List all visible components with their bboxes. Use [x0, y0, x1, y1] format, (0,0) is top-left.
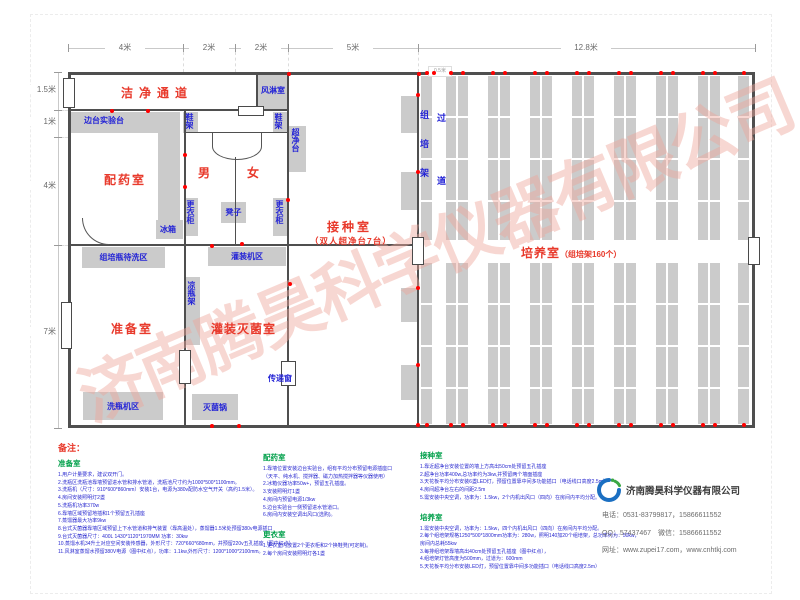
label-air-shower: 风淋室	[259, 86, 287, 95]
socket-dot-47	[713, 423, 717, 427]
room-clean-corridor: 洁净通道	[121, 84, 193, 101]
wall-airshower-left	[256, 72, 258, 110]
label-side-bench: 边台实验台	[84, 116, 124, 125]
label-shoe-rack-right: 鞋架	[274, 113, 283, 149]
note-line: 1.靠近超净台安装位置的墙上方高出50cm处预留五孔插座	[420, 464, 585, 472]
notes-title-changing: 更衣室	[263, 529, 418, 540]
socket-dot-15	[210, 424, 214, 428]
dim-tick-left-4	[54, 428, 62, 429]
label-wardrobe-left: 更衣柜	[186, 200, 195, 240]
note-line: 7.蒸馏器最大功率9kw	[58, 518, 258, 526]
note-line: 1.更衣室内放置2个更衣柜和2个换鞋凳(可定制)。	[263, 543, 418, 551]
dim-tick-top-3	[288, 44, 289, 52]
label-bottle-wait-area: 组培瓶待洗区	[82, 247, 165, 268]
notes-column-3: 接种室 1.靠近超净台安装位置的墙上方高出50cm处预留五孔插座2.超净台功率4…	[420, 450, 585, 572]
socket-dot-23	[461, 423, 465, 427]
dim-tick-top-0	[68, 44, 69, 52]
label-clean-bench: 超净台	[291, 128, 300, 174]
socket-dot-29	[533, 423, 537, 427]
note-line: 4.房间安装照明灯2盏	[58, 495, 258, 503]
note-line: 10.蒸馏水机34升土对应空间安装传感器，外形尺寸：720*660*680mm，…	[58, 541, 258, 549]
socket-dot-21	[449, 423, 453, 427]
label-fridge: 冰箱	[160, 225, 176, 234]
room-prep: 准备室	[111, 320, 153, 337]
socket-dot-20	[449, 71, 453, 75]
socket-dot-14	[288, 282, 292, 286]
dim-left-4m: 4米	[30, 181, 56, 190]
dim-ext-top-3	[418, 52, 420, 72]
note-line: 6.房间内安装空调出风口(选购)。	[263, 512, 418, 520]
dim-top-2m-b: 2米	[241, 43, 281, 52]
note-line: 4.房间超净台左右的间距2.5m	[420, 487, 585, 495]
dim-ext-top-1	[235, 52, 237, 72]
room-inoculation: 接种室	[327, 218, 372, 235]
label-wardrobe-right: 更衣柜	[275, 200, 284, 240]
socket-dot-17	[432, 71, 436, 75]
room-female: 女	[247, 164, 259, 181]
room-culture-sub: （组培架160个）	[560, 250, 621, 259]
socket-dot-42	[671, 71, 675, 75]
note-line: 3.洗瓶机（尺寸：910*600*860mm）安装1台，电源为380v配防水空气…	[58, 487, 258, 495]
door-prep-room	[61, 302, 72, 349]
socket-dot-36	[617, 71, 621, 75]
note-line: 1.靠墙位置安装边台实验台，组有平均分布预留电源插座口	[263, 466, 418, 474]
dim-ext-top-0	[183, 52, 185, 72]
dim-tick-left-2	[54, 137, 62, 138]
socket-dot-25	[491, 423, 495, 427]
label-rack-vertical: 组培架	[419, 110, 428, 200]
label-cool-rack: 凉瓶架	[187, 281, 196, 343]
socket-dot-41	[659, 423, 663, 427]
left-dimension-line	[58, 72, 59, 428]
socket-dot-39	[629, 423, 633, 427]
socket-dot-24	[491, 71, 495, 75]
notes-title-prep: 准备室	[58, 458, 258, 469]
notes-list-inoculation: 1.靠近超净台安装位置的墙上方高出50cm处预留五孔插座2.超净台功率400w,…	[420, 464, 585, 503]
notes-list-culture: 1.需安装中央空调，功率为：1.5kw，四个内机出风口（四向）在房间内平均分配。…	[420, 526, 585, 572]
note-line: 8.台式灭菌器靠墙区域预留上下水管道和排气装置（靠高温处），蒸馏器1.5米处预留…	[58, 526, 258, 534]
note-line: 4.房间内预留电源1/3kw	[263, 497, 418, 505]
socket-dot-33	[575, 423, 579, 427]
socket-dot-3	[417, 72, 421, 76]
socket-dot-34	[587, 71, 591, 75]
room-culture: 培养室	[521, 246, 560, 260]
socket-dot-28	[533, 71, 537, 75]
dim-tick-left-1	[54, 110, 62, 111]
socket-dot-1	[146, 109, 150, 113]
label-aisle-vertical: 过道	[436, 113, 445, 198]
dim-left-7m: 7米	[30, 327, 56, 336]
socket-dot-12	[240, 242, 244, 246]
room-dispensing: 配药室	[104, 171, 146, 188]
socket-dot-4	[416, 93, 420, 97]
dim-left-1-5m: 1.5米	[30, 85, 56, 94]
notes-column-1: 备注： 准备室 1.用户计量要求，建议双开门。2.洗瓶区洗瓶池靠墙预留进水管和排…	[58, 441, 258, 557]
socket-dot-43	[671, 423, 675, 427]
note-line: 2.冰箱仪器功率50w+，预留五孔插座。	[263, 481, 418, 489]
dim-top-12-8m: 12.8米	[561, 43, 611, 52]
dim-tick-top-2	[235, 44, 236, 52]
company-block: 济南腾昊科学仪器有限公司 电话：0531-83799817，1586661155…	[596, 477, 740, 555]
socket-dot-46	[713, 71, 717, 75]
note-line: 2.每个房间安装照明灯各1盏	[263, 551, 418, 559]
label-washer-area: 洗瓶机区	[83, 392, 163, 420]
socket-dot-31	[545, 423, 549, 427]
dim-top-4m: 4米	[105, 43, 145, 52]
socket-dot-0	[110, 109, 114, 113]
socket-dot-9	[183, 153, 187, 157]
company-logo-icon	[596, 477, 622, 503]
note-line: 5.天花板平均分布安装LED灯，预留位置靠中间多功能插口（电话线口高度2.5m）	[420, 564, 585, 572]
socket-dot-6	[416, 286, 420, 290]
door-culture-right	[748, 237, 760, 265]
door-prep-filling	[179, 350, 191, 384]
dim-top-5m: 5米	[333, 43, 373, 52]
socket-dot-16	[237, 424, 241, 428]
dim-tick-top-5	[755, 44, 756, 52]
note-line: 2.每个组培架规格1250*500*1800mm功率为：280w，照明140加2…	[420, 533, 585, 541]
socket-dot-26	[503, 71, 507, 75]
socket-dot-30	[545, 71, 549, 75]
notes-title-inoculation: 接种室	[420, 450, 585, 461]
socket-dot-19	[425, 423, 429, 427]
note-line: 4.组培架灯管高度为500mm，过道为：600mm	[420, 556, 585, 564]
socket-dot-48	[742, 71, 746, 75]
floorplan-canvas: 济南腾昊科学仪器有限公司 4米 2米 2米 5米 12.8米 1.5米 1米 4…	[0, 0, 800, 600]
dim-tick-left-0	[54, 72, 62, 73]
socket-dot-8	[416, 423, 420, 427]
note-line: 3.安装照明灯1盏	[263, 489, 418, 497]
notes-list-changing: 1.更衣室内放置2个更衣柜和2个换鞋凳(可定制)。2.每个房间安装照明灯各1盏	[263, 543, 418, 558]
notes-title-dispensing: 配药室	[263, 452, 418, 463]
socket-dot-5	[416, 170, 420, 174]
socket-dot-32	[575, 71, 579, 75]
socket-dot-35	[587, 423, 591, 427]
socket-dot-22	[461, 71, 465, 75]
dim-left-1m: 1米	[30, 117, 56, 126]
socket-dot-18	[425, 71, 429, 75]
socket-dot-38	[629, 71, 633, 75]
label-filling-area: 灌装机区	[208, 247, 286, 266]
socket-dot-40	[659, 71, 663, 75]
dim-tick-left-3	[54, 245, 62, 246]
label-shoe-rack-left: 鞋架	[185, 113, 194, 149]
room-male: 男	[198, 164, 210, 181]
label-stool: 凳子	[221, 208, 246, 217]
note-line: 5.需安装中央空调，功率为：1.5kw，2个内机出风口（四向）在房间内平均分配。	[420, 495, 585, 503]
room-culture-label-group: 培养室（组培架160个）	[521, 244, 621, 262]
socket-dot-13	[210, 244, 214, 248]
company-website: 网址：www.zupei17.com，www.cnhtkj.com	[602, 545, 740, 555]
wall-male-female-divider	[235, 157, 236, 245]
socket-dot-11	[286, 198, 290, 202]
socket-dot-49	[742, 423, 746, 427]
door-inoculation-culture	[412, 237, 424, 265]
notes-column-2: 配药室 1.靠墙位置安装边台实验台，组有平均分布预留电源插座口（天平、纯水机、搅…	[263, 452, 418, 558]
note-line: 3.天花板平均分布安装6盏LED灯，预留位置靠中间多功能插口（电话线口高度2.5…	[420, 479, 585, 487]
note-line: 房间内总耗55kw	[420, 541, 585, 549]
socket-dot-27	[503, 423, 507, 427]
company-name: 济南腾昊科学仪器有限公司	[626, 483, 740, 497]
room-filling-sterilize: 灌装灭菌室	[211, 320, 276, 337]
note-line: 5.洗瓶机功率370w	[58, 503, 258, 511]
dim-tick-top-1	[183, 44, 184, 52]
note-line: 1.用户计量要求，建议双开门。	[58, 472, 258, 480]
socket-dot-2	[287, 72, 291, 76]
door-changing-entry	[238, 106, 264, 116]
room-inoculation-sub: （双人超净台7台）	[310, 235, 392, 247]
dim-top-2m-a: 2米	[189, 43, 229, 52]
company-qq-wechat: QQ：57437467 微信：15866611552	[602, 528, 740, 538]
notes-heading: 备注：	[58, 441, 258, 454]
notes-title-culture: 培养室	[420, 512, 585, 523]
socket-dot-37	[617, 423, 621, 427]
label-pass-window: 传递窗	[268, 374, 292, 383]
note-line: 11.风淋室蒸馏水预留380V电源（图中红点），功率：1.1kw,外形尺寸：12…	[58, 549, 258, 557]
door-corridor-entrance	[63, 78, 75, 108]
socket-dot-45	[701, 423, 705, 427]
dim-tick-top-4	[418, 44, 419, 52]
socket-dot-44	[701, 71, 705, 75]
socket-dot-10	[183, 185, 187, 189]
company-phone: 电话：0531-83799817，15866611552	[602, 510, 740, 520]
socket-dot-7	[416, 363, 420, 367]
notes-list-prep: 1.用户计量要求，建议双开门。2.洗瓶区洗瓶池靠墙预留进水管和排水管道，洗瓶池尺…	[58, 472, 258, 557]
notes-list-dispensing: 1.靠墙位置安装边台实验台，组有平均分布预留电源插座口（天平、纯水机、搅拌器、磁…	[263, 466, 418, 520]
label-autoclave: 灭菌锅	[192, 394, 238, 420]
dim-ext-top-2	[288, 52, 290, 72]
top-dimension-line	[68, 48, 755, 49]
changing-room-door-arc	[212, 133, 262, 160]
